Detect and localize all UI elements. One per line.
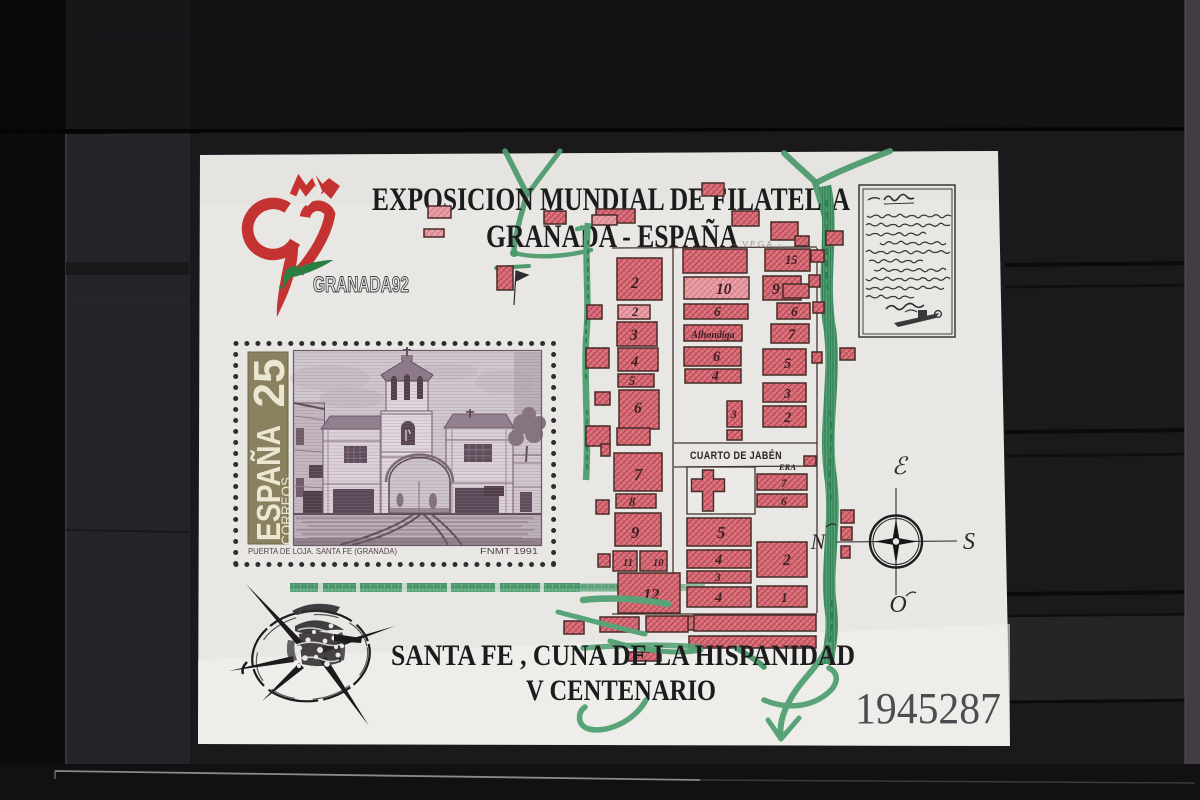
svg-text:5: 5: [629, 374, 635, 388]
svg-text:2: 2: [782, 552, 791, 569]
svg-text:7: 7: [788, 327, 796, 343]
svg-text:3: 3: [714, 572, 721, 584]
svg-text:6: 6: [634, 400, 642, 417]
svg-text:2: 2: [630, 275, 639, 292]
svg-text:2: 2: [783, 410, 791, 426]
svg-text:Alhondiga: Alhondiga: [690, 330, 734, 341]
svg-text:- VEGA -: - VEGA -: [733, 239, 783, 249]
svg-text:4: 4: [630, 354, 638, 370]
svg-text:15: 15: [785, 253, 798, 267]
svg-text:O: O: [889, 592, 906, 618]
svg-text:5: 5: [717, 523, 725, 542]
svg-text:11: 11: [623, 558, 633, 569]
svg-text:10: 10: [653, 558, 664, 569]
svg-text:25: 25: [245, 359, 294, 408]
svg-text:3: 3: [730, 409, 737, 421]
svg-text:3: 3: [629, 327, 638, 344]
svg-text:GRANADA92: GRANADA92: [313, 272, 409, 297]
svg-text:S: S: [963, 529, 975, 555]
svg-text:4: 4: [714, 590, 722, 606]
svg-text:8: 8: [629, 495, 636, 509]
svg-text:9: 9: [631, 523, 639, 542]
svg-text:4: 4: [711, 368, 719, 383]
svg-text:CORREOS: CORREOS: [278, 477, 294, 545]
svg-text:PUERTA DE LOJA. SANTA FE (GRAN: PUERTA DE LOJA. SANTA FE (GRANADA): [248, 547, 397, 556]
svg-text:6: 6: [781, 496, 787, 508]
svg-text:2: 2: [631, 305, 638, 319]
svg-text:9: 9: [772, 281, 780, 298]
svg-text:6: 6: [714, 304, 721, 319]
svg-text:1: 1: [781, 590, 788, 605]
svg-text:6: 6: [791, 304, 798, 319]
svg-text:10: 10: [716, 281, 732, 298]
svg-text:ℰ: ℰ: [892, 454, 909, 480]
svg-text:SANTA FE , CUNA DE LA HISPANI: SANTA FE , CUNA DE LA HISPANIDAD: [391, 639, 855, 672]
svg-text:4: 4: [714, 552, 722, 568]
svg-text:5: 5: [784, 356, 791, 372]
svg-text:ERA: ERA: [778, 462, 796, 472]
svg-text:1945287: 1945287: [855, 684, 1001, 733]
svg-text:6: 6: [713, 349, 721, 365]
svg-text:7: 7: [634, 465, 643, 484]
svg-text:N: N: [810, 529, 827, 554]
svg-text:FNMT 1991: FNMT 1991: [480, 547, 539, 556]
svg-text:CUARTO DE JABÉN: CUARTO DE JABÉN: [690, 449, 782, 462]
svg-text:3: 3: [783, 386, 791, 401]
svg-text:V CENTENARIO: V CENTENARIO: [526, 674, 716, 707]
